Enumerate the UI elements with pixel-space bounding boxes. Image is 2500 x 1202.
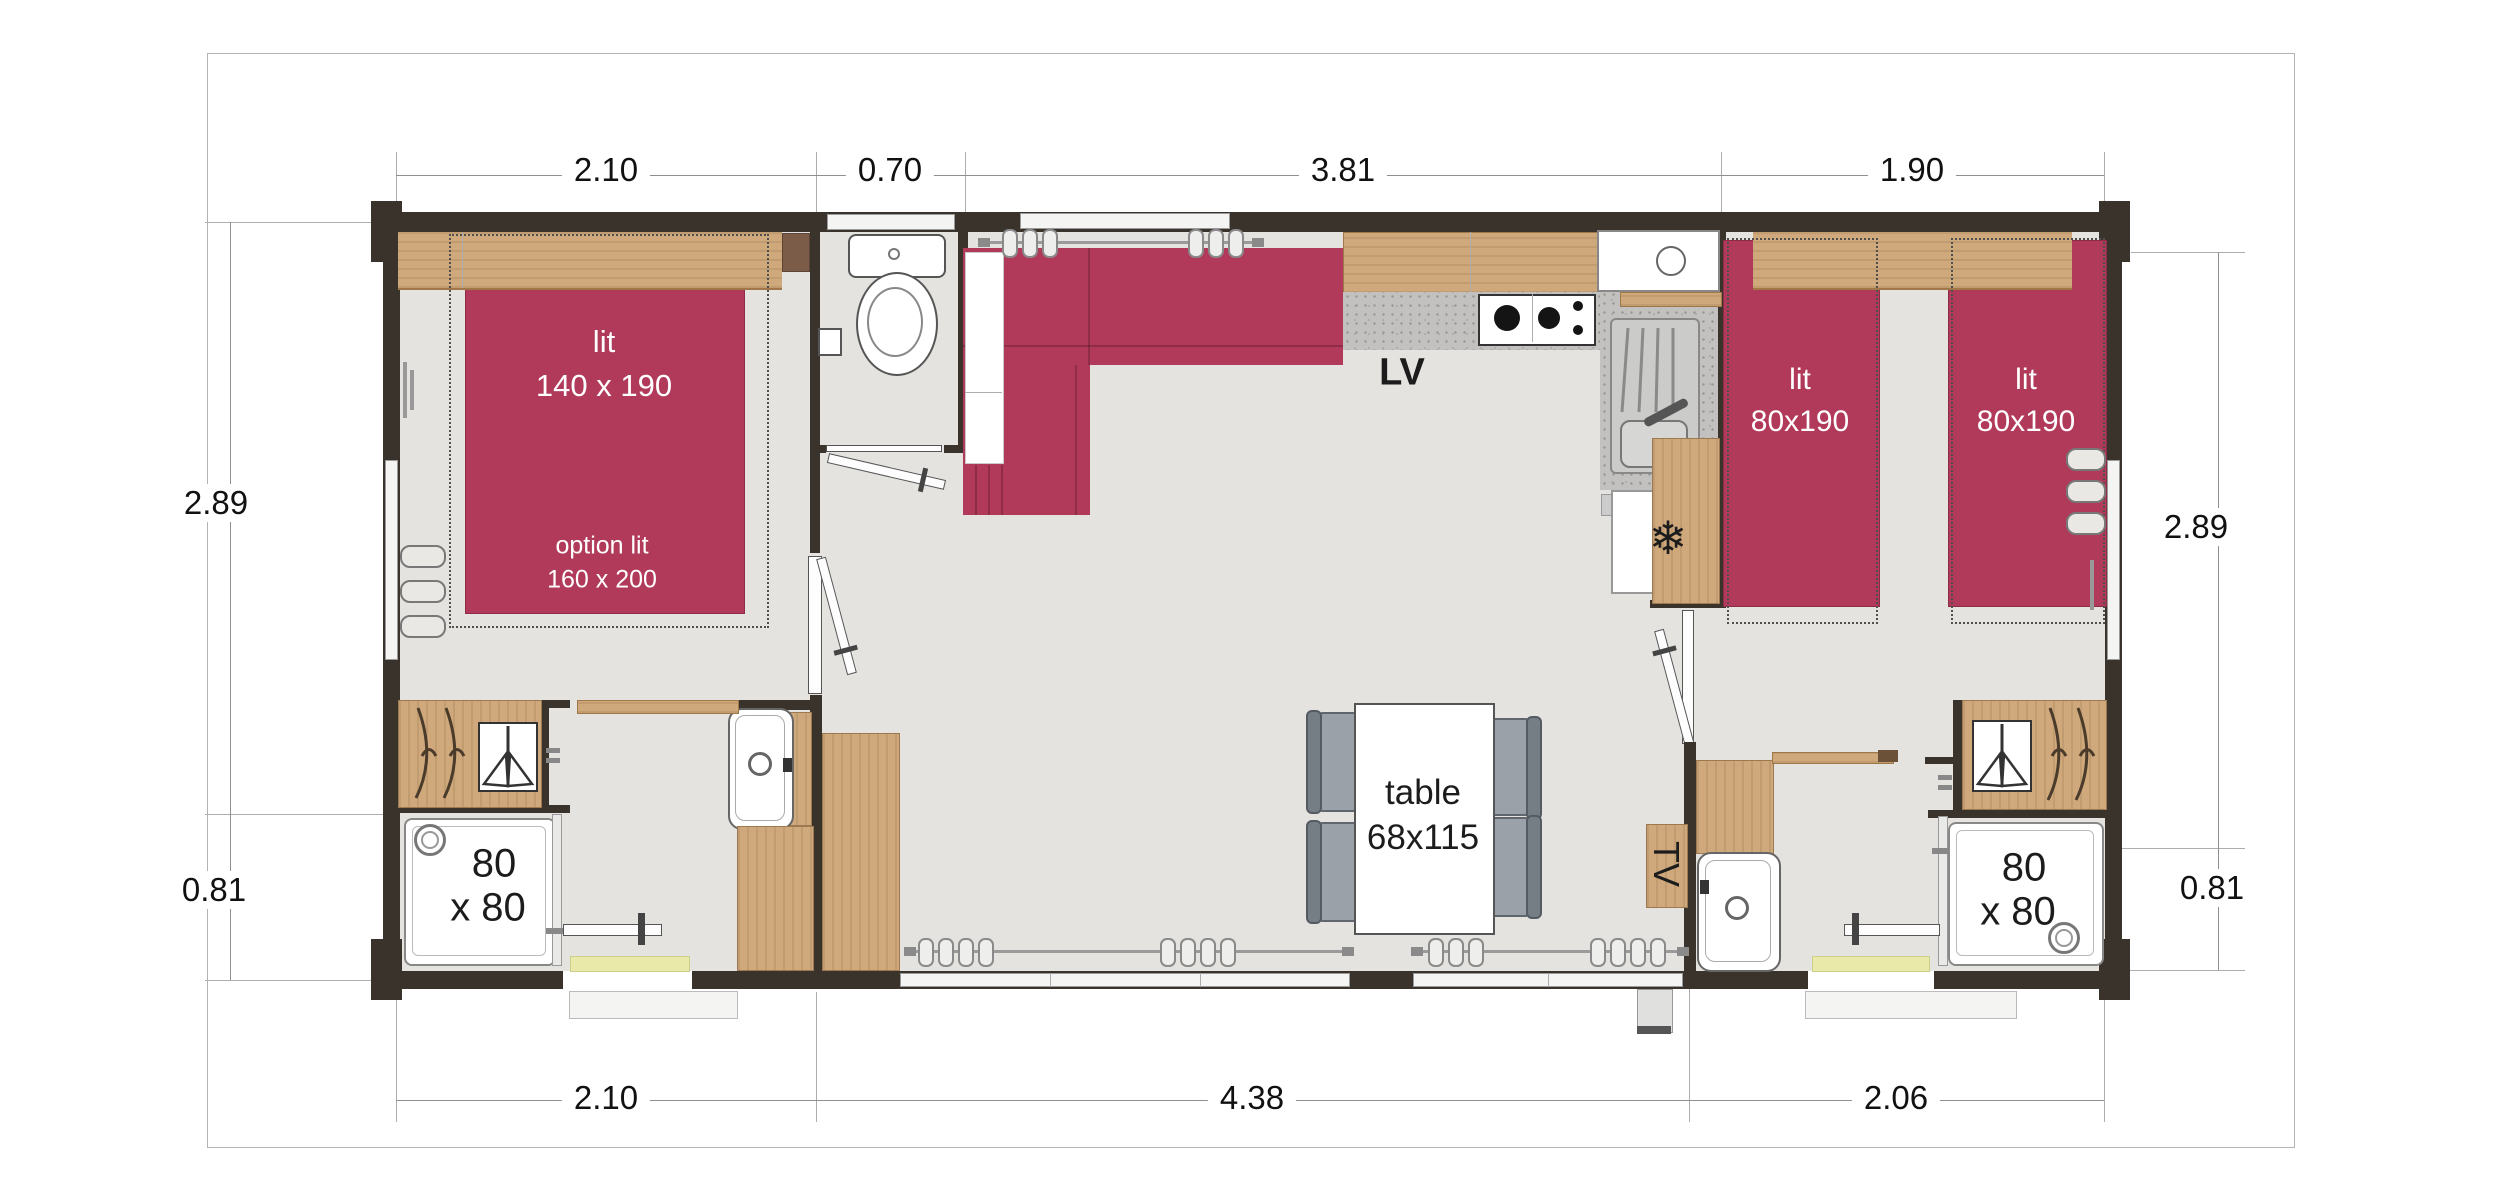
master-bed-label-1: lit: [593, 324, 615, 360]
shower-handle-right: [1932, 848, 1950, 854]
dim-right-2: 0.81: [2168, 869, 2256, 907]
dim-ext: [205, 222, 383, 223]
cabinet-line: [1470, 232, 1471, 292]
cabinet-under-basin: [737, 826, 814, 971]
master-bed-label-2: 140 x 190: [536, 368, 672, 404]
toilet-button: [888, 248, 900, 260]
dim-left-2: 0.81: [170, 871, 258, 909]
wall-wardrobe-stub-h: [540, 700, 570, 708]
basin-drain: [748, 752, 772, 776]
wardrobe-shelf: [478, 722, 538, 792]
wardrobe-door-handle: [1938, 775, 1952, 780]
curtain-rod-cap: [1342, 947, 1354, 956]
curtain-loop: [1200, 938, 1216, 967]
curtain-loop: [1650, 938, 1666, 967]
wall-wardrobe-right-stub-h: [1925, 757, 1953, 764]
dim-line-left: [230, 222, 231, 980]
tp-holder: [818, 328, 842, 356]
shelf-right-tip: [1878, 750, 1898, 762]
dim-ext: [396, 152, 397, 205]
dim-top-2: 0.70: [846, 151, 934, 189]
wall-wc-bottom-l: [810, 445, 826, 453]
counter-wood-top: [1343, 232, 1599, 294]
shower-left-label-1: 80: [472, 842, 517, 887]
curtain-loop: [1042, 229, 1058, 258]
dim-left-1: 2.89: [172, 484, 260, 522]
table-label-1: table: [1385, 773, 1461, 813]
bench-pleat: [988, 465, 990, 515]
master-nightstand: [782, 233, 810, 272]
doormat-left: [570, 956, 690, 972]
dim-top-4: 1.90: [1868, 151, 1956, 189]
chair-backrest: [1306, 820, 1322, 924]
curtain-loop: [1220, 938, 1236, 967]
twin-right-label-1: lit: [2015, 363, 2037, 397]
chair-backrest: [1526, 716, 1542, 820]
wc-door-threshold: [826, 445, 942, 452]
curtain-rod-cap: [904, 947, 916, 956]
coat-hook: [2066, 448, 2106, 471]
curtain-loop: [1590, 938, 1606, 967]
dim-right-1: 2.89: [2152, 508, 2240, 546]
shower-glass-left: [552, 814, 562, 966]
shower-left-label-2: x 80: [450, 886, 526, 931]
curtain-loop: [978, 938, 994, 967]
folded-linen-icon: [480, 724, 536, 790]
curtain-rod-cap: [978, 238, 990, 247]
bench-pleat: [1001, 465, 1003, 515]
curtain-loop: [958, 938, 974, 967]
curtain-loop: [1448, 938, 1464, 967]
twin-right-label-2: 80x190: [1977, 405, 2075, 439]
entrance-step-right: [1805, 991, 2017, 1019]
curtain-loop: [938, 938, 954, 967]
table-label-2: 68x115: [1367, 818, 1479, 858]
window-mullion: [1200, 973, 1201, 987]
dim-ext: [2104, 992, 2105, 1122]
basin-drain: [1725, 896, 1749, 920]
master-option-label-1: option lit: [555, 532, 648, 561]
dim-top-1: 2.10: [562, 151, 650, 189]
curtain-loop: [1180, 938, 1196, 967]
door-handle: [1852, 913, 1859, 945]
dim-ext: [205, 814, 398, 815]
curtain-loop: [1610, 938, 1626, 967]
drain-inner: [2055, 929, 2073, 947]
wall-bottom-seg3: [1934, 971, 2122, 989]
curtain-loop: [1160, 938, 1176, 967]
wardrobe-door-handle: [546, 748, 560, 753]
entrance-step-left: [569, 991, 738, 1019]
wall-pipe: [2090, 560, 2094, 610]
burner: [1573, 325, 1583, 335]
wall-pipe: [403, 362, 407, 418]
bench-backrest: [965, 252, 1004, 464]
bench-seam: [1088, 248, 1090, 365]
coat-hook: [400, 615, 446, 638]
window-twin-right: [2107, 460, 2120, 660]
curtain-loop: [1468, 938, 1484, 967]
curtain-rod-cap: [1411, 947, 1423, 956]
shower-drain-left: [414, 824, 446, 856]
hall-shelf-left: [577, 700, 739, 714]
bench-horizontal: [963, 248, 1343, 365]
bench-seam: [963, 345, 1343, 347]
curtain-loop: [1208, 229, 1224, 258]
basin-tap: [1700, 880, 1709, 894]
coat-hook: [400, 545, 446, 568]
chair-backrest: [1306, 710, 1322, 814]
shower-glass-right: [1938, 816, 1948, 966]
curtain-rod-cap: [1677, 947, 1689, 956]
bench-seam: [1075, 365, 1077, 515]
twin-left-label-1: lit: [1789, 363, 1811, 397]
folded-linen-icon: [1974, 722, 2030, 790]
appliance-bowl: [1656, 246, 1686, 276]
dishwasher-label: LV: [1379, 352, 1425, 395]
wall-wardrobe-right-stub-v: [1953, 700, 1962, 812]
exterior-step-box-edge: [1637, 1026, 1671, 1034]
door-handle: [638, 913, 645, 945]
window-wc: [827, 214, 955, 230]
toilet-bowl: [856, 272, 938, 376]
fridge-handle: [1601, 494, 1612, 516]
coat-hook: [2066, 480, 2106, 503]
wardrobe-door-handle: [1938, 785, 1952, 790]
hall-cabinet: [822, 733, 900, 971]
dim-bottom-3: 2.06: [1852, 1079, 1940, 1117]
cabinet-right-bath: [1696, 760, 1774, 854]
dim-line-right: [2218, 252, 2219, 970]
coat-hook: [400, 580, 446, 603]
basin-tap: [783, 758, 792, 772]
dim-bottom-1: 2.10: [562, 1079, 650, 1117]
dim-ext: [2104, 152, 2105, 205]
dim-ext: [205, 980, 383, 981]
entrance-door-left: [563, 924, 662, 936]
drain-inner: [421, 831, 439, 849]
wall-shower-right-top: [1928, 810, 2105, 818]
wall-pipe: [410, 370, 414, 410]
burner: [1573, 301, 1583, 311]
burner: [1538, 307, 1560, 329]
window-bottom-1: [900, 973, 1350, 987]
wall-bottom-seg1: [383, 971, 563, 989]
dim-line-top: [396, 175, 2104, 176]
wall-wc-left: [810, 232, 820, 553]
backrest-seam: [965, 392, 1002, 393]
corner-post-bl: [371, 939, 402, 1000]
floor-plan-page: 2.10 0.70 3.81 1.90 2.10 4.38 2.06 2.89 …: [0, 0, 2500, 1202]
curtain-loop: [1630, 938, 1646, 967]
chair-backrest: [1526, 815, 1542, 919]
curtain-loop: [1002, 229, 1018, 258]
shelf-right-bath: [1772, 752, 1894, 764]
freezer-icon: ❄: [1649, 511, 1688, 565]
dim-ext: [2127, 970, 2245, 971]
tv-label: TV: [1645, 841, 1687, 887]
dim-ext: [396, 992, 397, 1122]
coat-hook: [2066, 512, 2106, 535]
window-mullion: [1548, 973, 1549, 987]
kitchen-shelf-strip: [1620, 292, 1722, 307]
window-mullion: [1050, 973, 1051, 987]
curtain-loop: [1228, 229, 1244, 258]
wardrobe-door-handle: [546, 758, 560, 763]
doormat-right: [1812, 956, 1930, 972]
dim-ext: [2112, 848, 2245, 849]
hob-line: [1532, 294, 1533, 342]
master-option-label-2: 160 x 200: [547, 566, 657, 595]
curtain-loop: [918, 938, 934, 967]
wall-top: [383, 212, 2122, 232]
window-living-top: [1020, 213, 1230, 229]
curtain-loop: [1022, 229, 1038, 258]
curtain-rod-cap: [1252, 238, 1264, 247]
shower-right-label-1: 80: [2002, 846, 2047, 891]
curtain-loop: [1188, 229, 1204, 258]
bench-pleat: [975, 465, 977, 515]
toilet-bowl-inner: [867, 287, 923, 357]
wardrobe-hangers-icon: [2032, 704, 2102, 804]
dim-top-3: 3.81: [1299, 151, 1387, 189]
dim-ext: [816, 992, 817, 1122]
shower-handle-left: [546, 928, 564, 934]
shower-right-label-2: x 80: [1980, 890, 2056, 935]
burner: [1494, 305, 1520, 331]
twin-left-label-2: 80x190: [1751, 405, 1849, 439]
wardrobe-shelf: [1972, 720, 2032, 792]
curtain-loop: [1428, 938, 1444, 967]
window-master-left: [385, 460, 398, 660]
wardrobe-hangers-icon: [402, 704, 478, 802]
dim-bottom-2: 4.38: [1208, 1079, 1296, 1117]
dim-ext: [2131, 252, 2245, 253]
